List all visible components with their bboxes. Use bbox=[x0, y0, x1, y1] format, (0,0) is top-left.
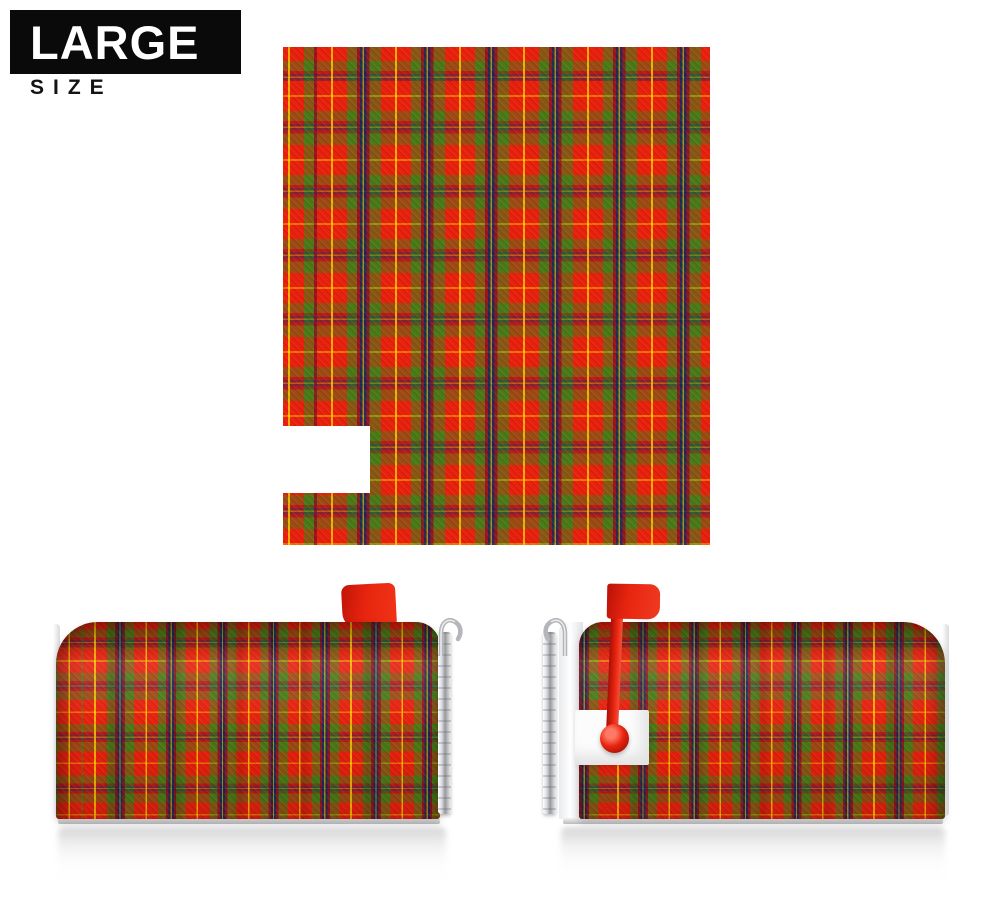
mailbox-curvature-shading bbox=[56, 622, 440, 819]
flag-notch-cutout bbox=[283, 426, 370, 493]
mailbox-body-covered bbox=[56, 622, 440, 819]
latch-hook-icon bbox=[540, 616, 570, 661]
size-badge-subtitle: SIZE bbox=[30, 77, 113, 98]
latch-hook-icon bbox=[436, 616, 466, 661]
mailbox-reflection bbox=[561, 827, 945, 885]
mailbox-flag-down-view bbox=[52, 580, 467, 885]
mailbox-reflection bbox=[58, 827, 446, 885]
flag-pivot-knob bbox=[600, 724, 629, 753]
tartan-cover-flat-swatch bbox=[283, 47, 710, 545]
mailbox-flag-up-view bbox=[535, 580, 950, 885]
mailbox-flag-up-icon bbox=[607, 584, 661, 620]
size-badge-box: LARGE bbox=[10, 10, 241, 74]
size-badge-title: LARGE bbox=[10, 19, 200, 66]
